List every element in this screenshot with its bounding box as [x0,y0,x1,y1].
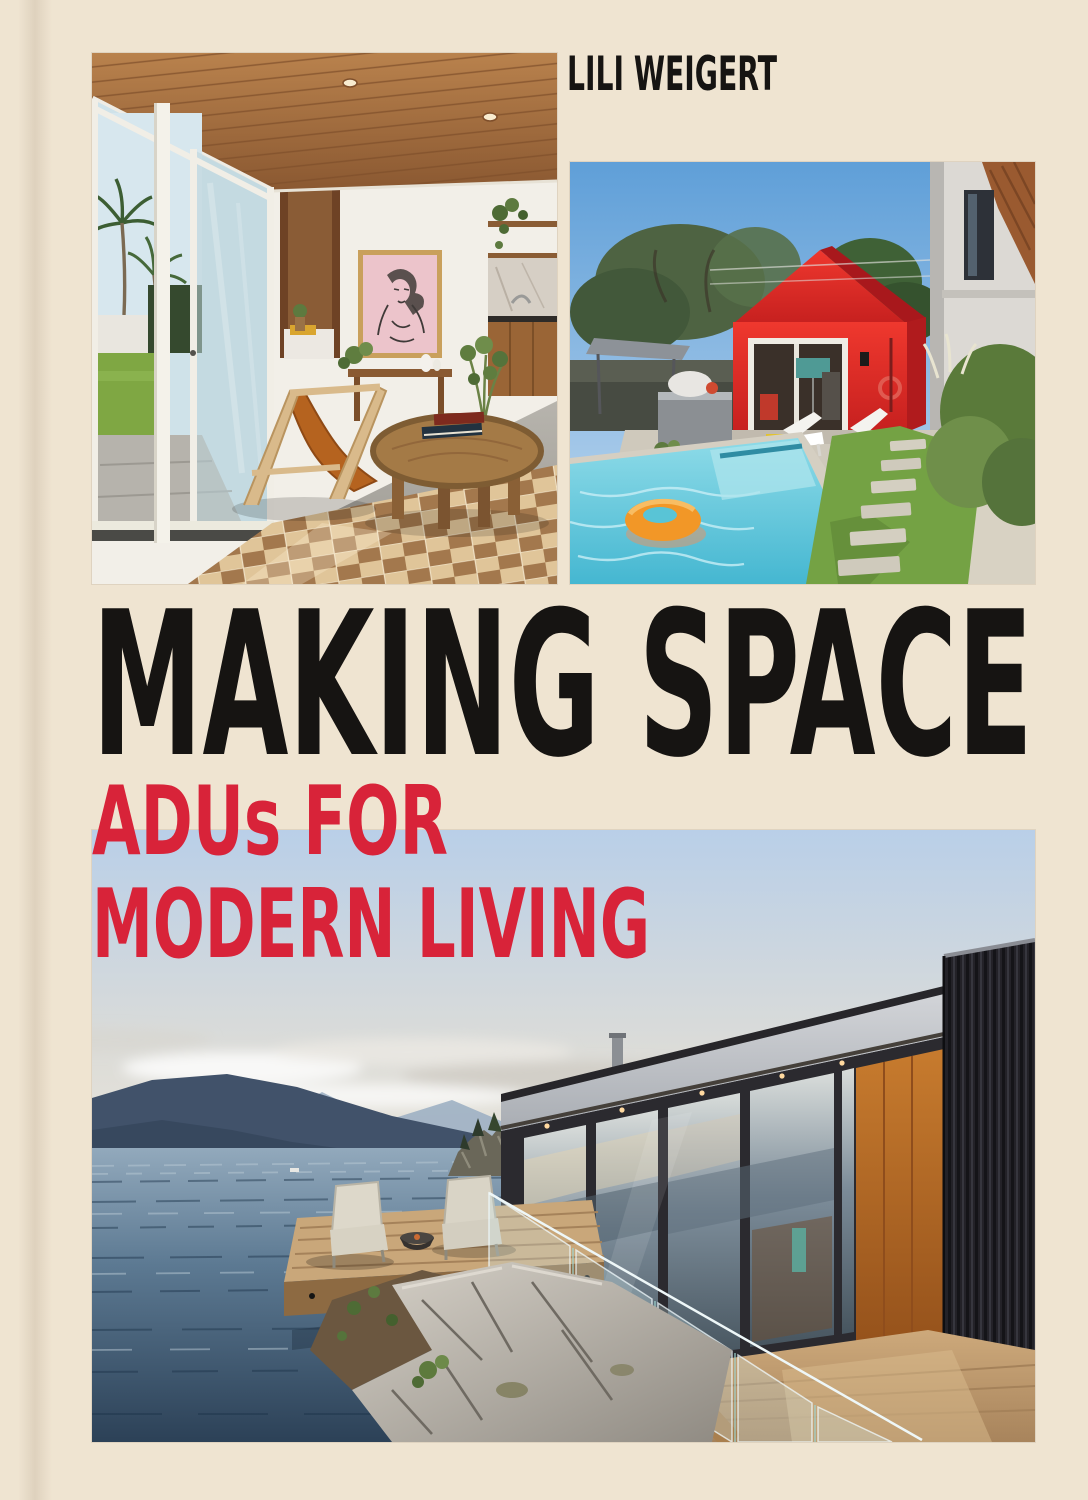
adu-door [748,338,848,432]
book-cover: LILI WEIGERT MAKING SPACE [0,0,1088,1500]
boat-speck [290,1168,299,1172]
door-track [92,530,274,541]
interior-scene [92,53,557,584]
round-coffee-table [365,412,549,537]
author-name: LILI WEIGERT [567,51,785,97]
hallway [280,173,340,359]
wall-light [860,352,869,366]
spine-crease [18,0,52,1500]
photo-interior-living-room [92,53,557,584]
red-chair [760,394,778,420]
subtitle-line-2: MODERN LIVING [92,886,658,966]
photo-backyard-red-adu [570,162,1035,584]
orange-panel [856,1049,944,1352]
teal-accent [792,1228,806,1272]
ceiling-light [343,79,357,87]
container-band [944,940,1035,1390]
book-title: MAKING SPACE [92,604,1037,762]
subtitle-line-2-text: MODERN LIVING [92,870,650,980]
subtitle-line-1-text: ADUs FOR [92,767,448,877]
author-name-text: LILI WEIGERT [567,47,777,102]
ceiling-light [483,113,497,121]
subtitle-line-1: ADUs FOR [92,783,458,863]
backyard-scene [570,162,1035,584]
door-handle [190,350,196,356]
framed-artwork [358,250,442,358]
